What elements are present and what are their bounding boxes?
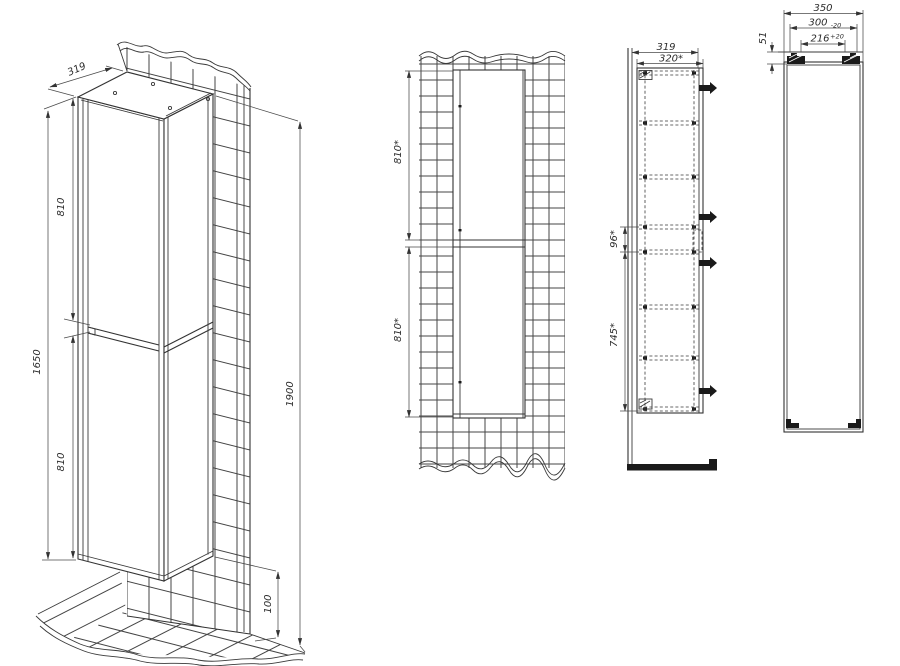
dim-label-height: 1650: [32, 349, 43, 374]
ext-line: [48, 89, 74, 96]
technical-drawing-page: 319 810 810 1650 1900 100: [0, 0, 900, 666]
dim-label-keyhole-span: 216: [810, 34, 829, 45]
floor-end-foot: [709, 459, 717, 470]
cabinet-front-face: [78, 97, 164, 581]
ext-line: [44, 97, 76, 109]
dim-label-depth: 319: [656, 42, 675, 53]
dim-label-lower-door: 810: [56, 452, 67, 471]
ext-line: [215, 557, 276, 571]
ext-line: [255, 638, 276, 641]
dim-label-upper-door: 810*: [393, 140, 404, 164]
wall-floor-junction: [127, 616, 250, 634]
dim-label-bracket-span-tol: -20: [831, 22, 842, 30]
front-view: 810* 810*: [393, 51, 565, 480]
isometric-view: 319 810 810 1650 1900 100: [14, 40, 507, 666]
ext-line: [106, 66, 123, 71]
dim-label-bracket-offset: 51: [758, 32, 769, 45]
tile-joint-line: [200, 576, 414, 666]
cabinet-front: [453, 70, 525, 418]
wall-break-top: [419, 51, 565, 58]
hinge-mark: [459, 229, 462, 231]
floor-thickness-band: [30, 616, 305, 666]
side-section-view: 319 320* 96* 745*: [609, 42, 717, 471]
dim-label-depth-overall: 320*: [659, 54, 683, 65]
hinge-mark: [459, 381, 462, 383]
cabinet-side-face: [164, 94, 213, 581]
floor-section-band: [627, 464, 717, 471]
drawing-canvas: 319 810 810 1650 1900 100: [0, 0, 900, 666]
dim-label-mounting-height: 1900: [285, 381, 296, 406]
dim-label-lower-section: 745*: [609, 323, 620, 347]
dim-label-handle-gap: 96*: [609, 230, 620, 248]
dim-label-width: 350: [813, 3, 832, 14]
dim-label-floor-clearance: 100: [263, 594, 274, 613]
dim-label-keyhole-span-tol: +20: [830, 33, 844, 41]
dim-label-upper-door: 810: [56, 197, 67, 216]
tile-joint-line: [171, 588, 462, 662]
dim-label-depth: 319: [66, 61, 88, 79]
cabinet-side-body: [637, 68, 703, 413]
tile-joint-line: [293, 600, 507, 666]
tile-joint-line: [195, 576, 486, 650]
dim-label-lower-door: 810*: [393, 318, 404, 342]
cabinet-rear-body: [784, 62, 863, 432]
rear-view: 350 300 -20 216 +20 51: [758, 3, 863, 432]
dim-label-bracket-span: 300: [808, 18, 827, 29]
front-dimensions: 810* 810*: [393, 71, 453, 417]
floor-left-cut: [38, 572, 120, 614]
floor-right-edge: [250, 634, 305, 653]
ext-line: [216, 96, 298, 121]
hinge-mark: [459, 105, 462, 107]
